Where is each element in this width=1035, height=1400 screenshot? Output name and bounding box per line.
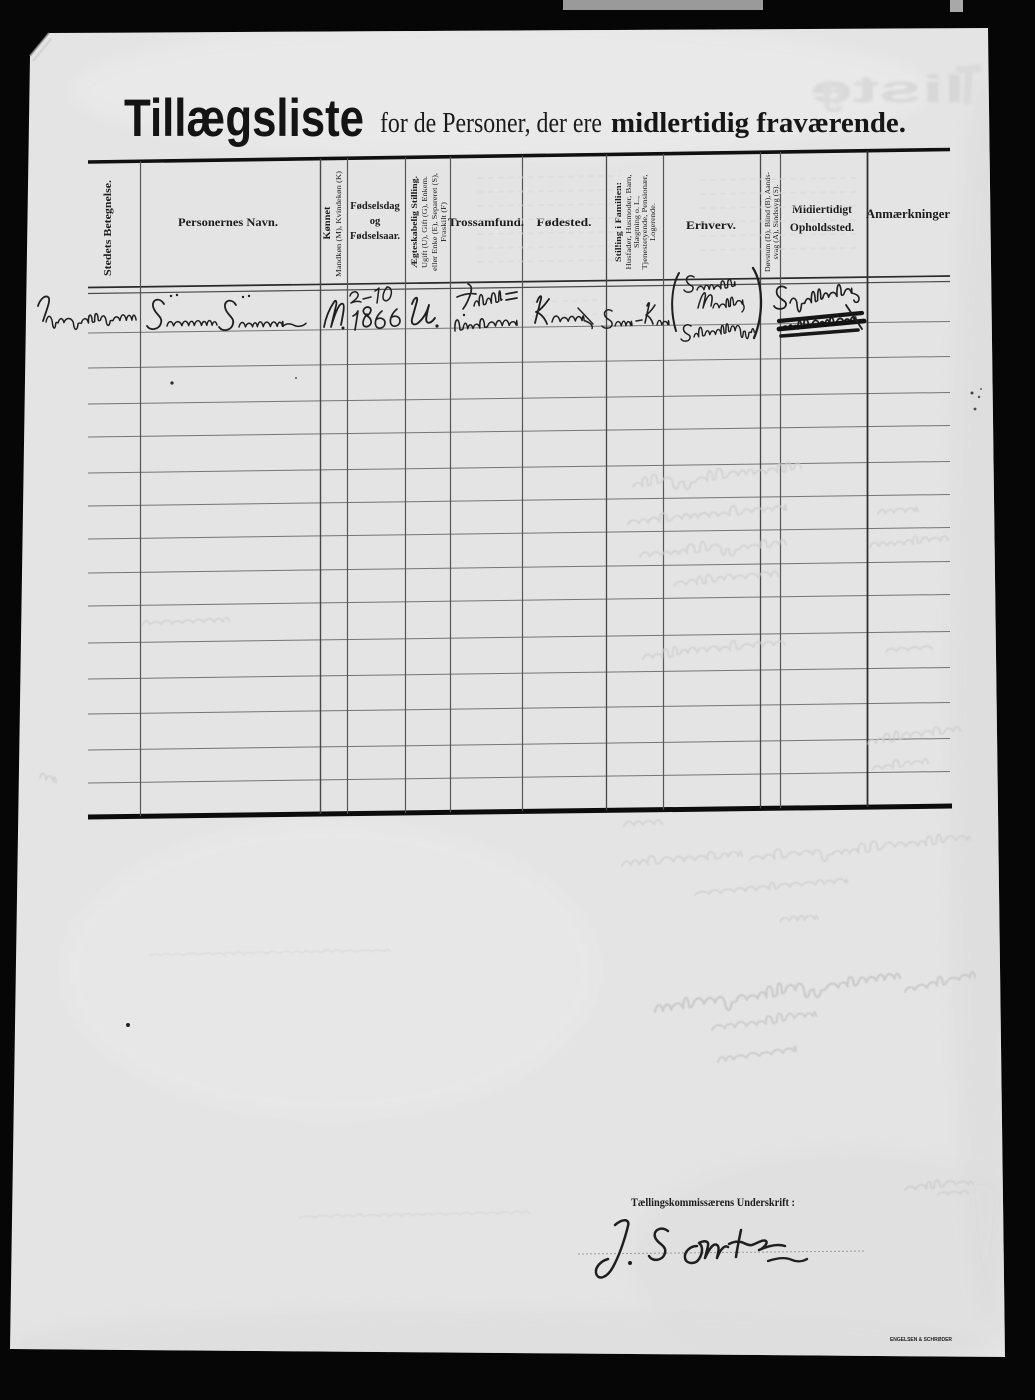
- svg-text:g: g: [822, 71, 845, 113]
- svg-text:Mandkøn (M), Kvindekøn (K): Mandkøn (M), Kvindekøn (K): [336, 171, 343, 277]
- svg-text:Fødselsaar.: Fødselsaar.: [350, 231, 400, 242]
- svg-text:Anmærkninger: Anmærkninger: [866, 206, 950, 221]
- svg-text:Kønnet: Kønnet: [322, 207, 332, 240]
- svg-text:Slægtning o. L.,: Slægtning o. L.,: [634, 196, 641, 248]
- svg-text:Erhverv.: Erhverv.: [686, 218, 736, 232]
- svg-text:Trossamfund.: Trossamfund.: [448, 215, 524, 229]
- svg-text:Logerende.: Logerende.: [650, 203, 657, 241]
- svg-text:Personernes Navn.: Personernes Navn.: [178, 215, 278, 229]
- svg-text:Ægteskabelig Stilling.: Ægteskabelig Stilling.: [409, 176, 419, 268]
- svg-text:Fraskilt (F): Fraskilt (F): [440, 201, 448, 242]
- svg-text:eller Enke (E), Separeret (S),: eller Enke (E), Separeret (S),: [431, 173, 439, 271]
- svg-text:Ugift (U), Gift (G), Enkem.: Ugift (U), Gift (G), Enkem.: [421, 176, 429, 268]
- svg-text:Stilling i Familien:: Stilling i Familien:: [613, 182, 623, 262]
- svg-text:Fødselsdag: Fødselsdag: [350, 201, 400, 212]
- svg-text:midlertidig fraværende.: midlertidig fraværende.: [611, 108, 906, 139]
- svg-text:ENGELSEN & SCHRØDER: ENGELSEN & SCHRØDER: [890, 1337, 952, 1343]
- svg-text:Husfader, Husmoder, Barn,: Husfader, Husmoder, Barn,: [626, 174, 633, 269]
- svg-text:Tællingskommissærens Underskr: Tællingskommissærens Underskrift :: [631, 1197, 795, 1209]
- svg-text:Fødested.: Fødested.: [537, 215, 592, 229]
- svg-text:Tjenestetyende, Pensionær,: Tjenestetyende, Pensionær,: [642, 174, 649, 269]
- svg-text:Opholdssted.: Opholdssted.: [790, 222, 854, 234]
- svg-text:og: og: [370, 216, 381, 227]
- svg-text:Stedets Betegnelse.: Stedets Betegnelse.: [103, 180, 114, 276]
- svg-text:for de Personer, der ere: for de Personer, der ere: [380, 108, 602, 139]
- svg-text:Tillægsliste: Tillægsliste: [124, 89, 364, 148]
